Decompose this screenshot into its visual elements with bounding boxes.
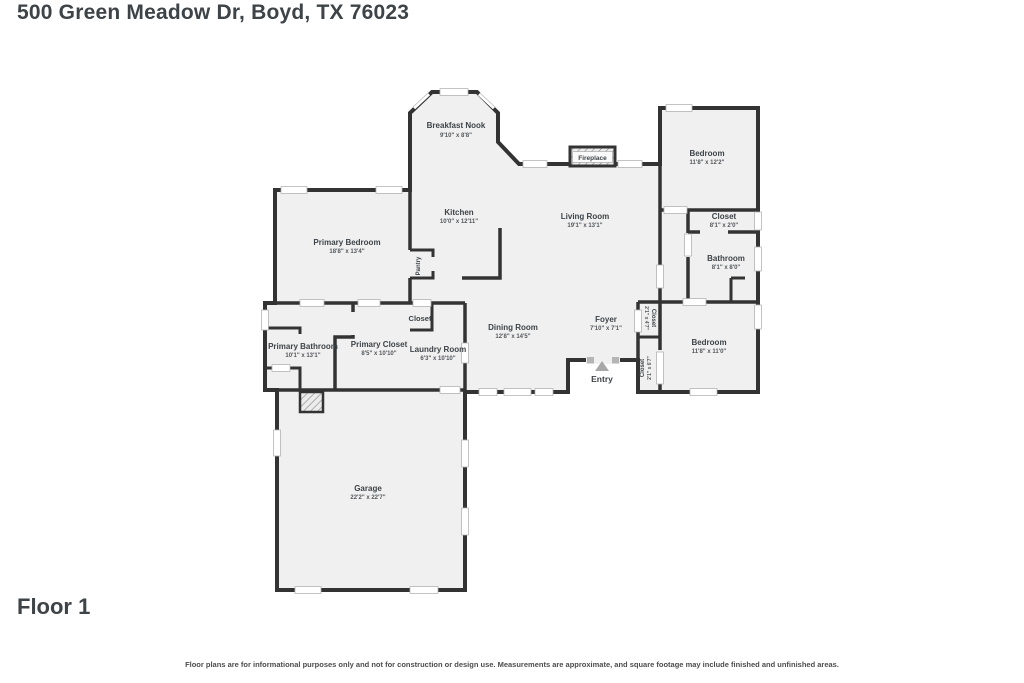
room-dims-closet-foyer: 2'1" x 4'7" <box>643 306 649 330</box>
room-dims-bathroom: 8'1" x 8'0" <box>712 265 741 271</box>
room-dims-garage: 22'2" x 22'7" <box>350 495 385 501</box>
room-label-breakfast-nook: Breakfast Nook <box>427 121 486 130</box>
room-label-living-room: Living Room <box>561 212 609 221</box>
room-dims-primary-bathroom: 10'1" x 13'1" <box>285 353 320 359</box>
room-label-primary-bedroom: Primary Bedroom <box>313 238 380 247</box>
pantry-label: Pantry <box>416 256 422 275</box>
room-dims-bedroom-2: 11'8" x 11'0" <box>692 349 727 355</box>
room-label-bedroom-2: Bedroom <box>691 338 726 347</box>
entry-jamb-left <box>587 357 594 363</box>
room-label-primary-closet: Primary Closet <box>351 340 408 349</box>
door <box>683 299 706 306</box>
room-label-closet-right: Closet <box>712 212 737 221</box>
room-dims-dining-room: 12'8" x 14'5" <box>495 334 530 340</box>
door <box>413 300 431 307</box>
room-label-bedroom-1: Bedroom <box>689 149 724 158</box>
window <box>755 247 762 271</box>
door <box>300 300 324 307</box>
window <box>440 89 468 96</box>
window <box>755 212 762 230</box>
room-dims-primary-bedroom: 18'8" x 13'4" <box>329 249 364 255</box>
room-dims-foyer: 7'10" x 7'1" <box>590 326 622 332</box>
door <box>657 265 664 288</box>
room-label-kitchen: Kitchen <box>444 208 473 217</box>
room-label-primary-bathroom: Primary Bathroom <box>268 342 338 351</box>
utility-box <box>300 392 323 412</box>
window <box>666 105 692 112</box>
window <box>535 389 553 396</box>
door <box>657 352 664 384</box>
room-dims-primary-closet: 8'5" x 10'10" <box>361 351 396 357</box>
entry-jamb-right <box>612 357 619 363</box>
window <box>295 587 321 594</box>
window <box>274 430 281 456</box>
window <box>376 187 402 194</box>
window <box>281 187 307 194</box>
door <box>664 207 687 214</box>
room-label-bathroom: Bathroom <box>707 254 745 263</box>
window <box>755 305 762 329</box>
room-dims-bedroom-1: 11'8" x 12'2" <box>690 160 725 166</box>
window <box>462 440 469 467</box>
floor-label: Floor 1 <box>17 594 90 620</box>
door <box>685 234 692 256</box>
window <box>410 587 438 594</box>
room-dims-closet-right: 8'1" x 2'0" <box>710 223 739 229</box>
window <box>262 310 269 330</box>
exterior-walls <box>265 92 758 590</box>
small-closet-label: Closet <box>409 314 432 323</box>
room-dims-living-room: 19'1" x 13'1" <box>567 223 602 229</box>
room-label-dining-room: Dining Room <box>488 323 538 332</box>
door <box>358 300 380 307</box>
building-outline <box>265 92 758 590</box>
window <box>462 508 469 535</box>
room-label-garage: Garage <box>354 484 382 493</box>
disclaimer-text: Floor plans are for informational purpos… <box>0 660 1024 669</box>
room-dims-laundry-room: 6'3" x 10'10" <box>420 356 455 362</box>
room-label-foyer: Foyer <box>595 315 617 324</box>
floor-plan-canvas: Breakfast Nook 9'10" x 8'8" Bedroom 11'8… <box>0 0 1024 683</box>
fireplace-label: Fireplace <box>578 155 607 162</box>
room-label-closet-foyer: Closet <box>650 309 656 327</box>
room-dims-breakfast-nook: 9'10" x 8'8" <box>440 133 472 139</box>
room-dims-kitchen: 10'0" x 12'11" <box>440 219 478 225</box>
window <box>523 161 547 168</box>
door <box>635 310 642 332</box>
entry-label: Entry <box>591 374 613 384</box>
window <box>504 389 531 396</box>
window <box>690 389 717 396</box>
room-dims-closet-bedroom2: 2'1" x 6'7" <box>647 355 653 379</box>
room-label-laundry-room: Laundry Room <box>410 345 466 354</box>
window <box>479 389 497 396</box>
window <box>618 161 642 168</box>
door <box>272 365 290 372</box>
door <box>440 387 460 394</box>
room-label-closet-bedroom2: Closet <box>640 359 646 377</box>
